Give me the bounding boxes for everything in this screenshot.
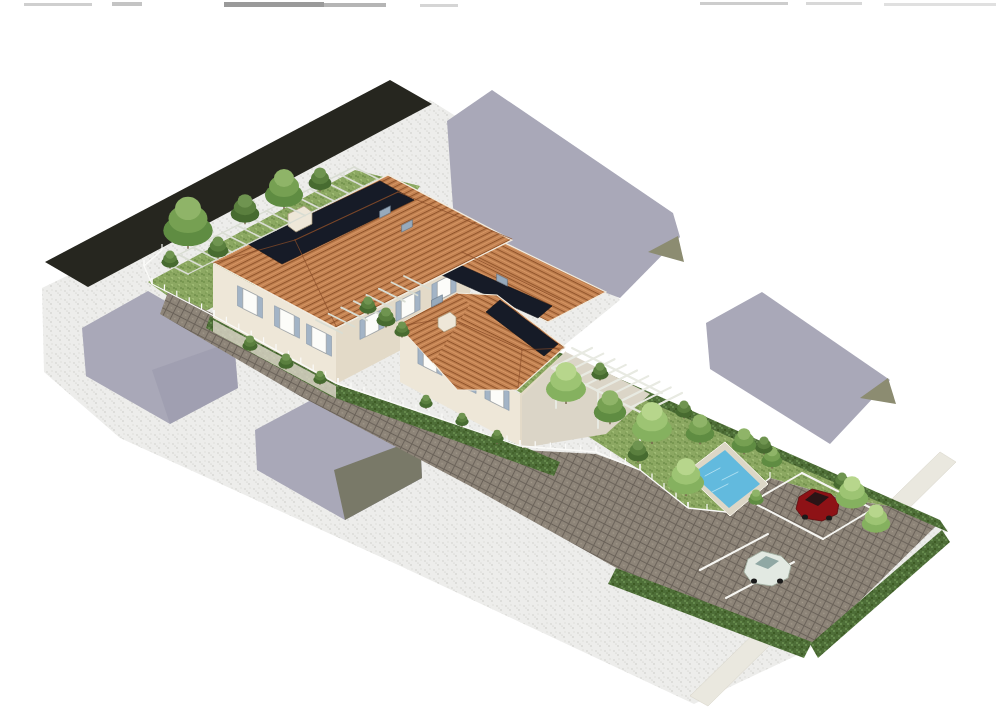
scan-artifact: [884, 3, 996, 6]
tree: [274, 169, 294, 187]
hedge-bush: [680, 401, 689, 409]
white-car-wheel: [751, 578, 757, 583]
bush: [398, 322, 406, 329]
bush: [459, 413, 466, 419]
tree: [213, 236, 224, 246]
bush: [494, 430, 501, 436]
tree: [602, 390, 619, 405]
tree: [869, 504, 884, 518]
bush: [246, 336, 254, 343]
tree: [314, 167, 326, 178]
scan-artifact: [420, 4, 458, 7]
scene-root: [24, 2, 996, 706]
site-plan-rendering: [0, 0, 1000, 707]
scan-artifact: [224, 2, 324, 7]
tree: [738, 428, 751, 440]
red-car-wheel: [826, 515, 832, 520]
bush: [317, 371, 324, 377]
tree: [642, 402, 663, 421]
tree: [693, 414, 708, 428]
tree: [556, 362, 577, 381]
hedge-bush: [596, 363, 605, 371]
hedge-bush: [760, 437, 769, 445]
scan-artifact: [24, 3, 92, 6]
tree: [238, 194, 253, 208]
tree: [175, 197, 201, 220]
scan-artifact: [324, 3, 386, 7]
bush: [381, 308, 391, 317]
bush: [752, 490, 760, 497]
bush: [364, 297, 373, 305]
tree: [166, 251, 175, 259]
tree: [844, 476, 861, 491]
white-car-wheel: [777, 578, 783, 583]
axonometric-site-view: [0, 0, 1000, 707]
bush: [633, 440, 644, 450]
neighbor-block-mid-right: [706, 292, 890, 444]
bush: [423, 395, 430, 401]
tree: [677, 458, 696, 475]
scan-artifact: [700, 2, 788, 5]
bush: [282, 354, 290, 361]
scan-artifact: [112, 2, 142, 6]
scan-artifact: [806, 2, 862, 5]
red-car-wheel: [802, 514, 808, 519]
